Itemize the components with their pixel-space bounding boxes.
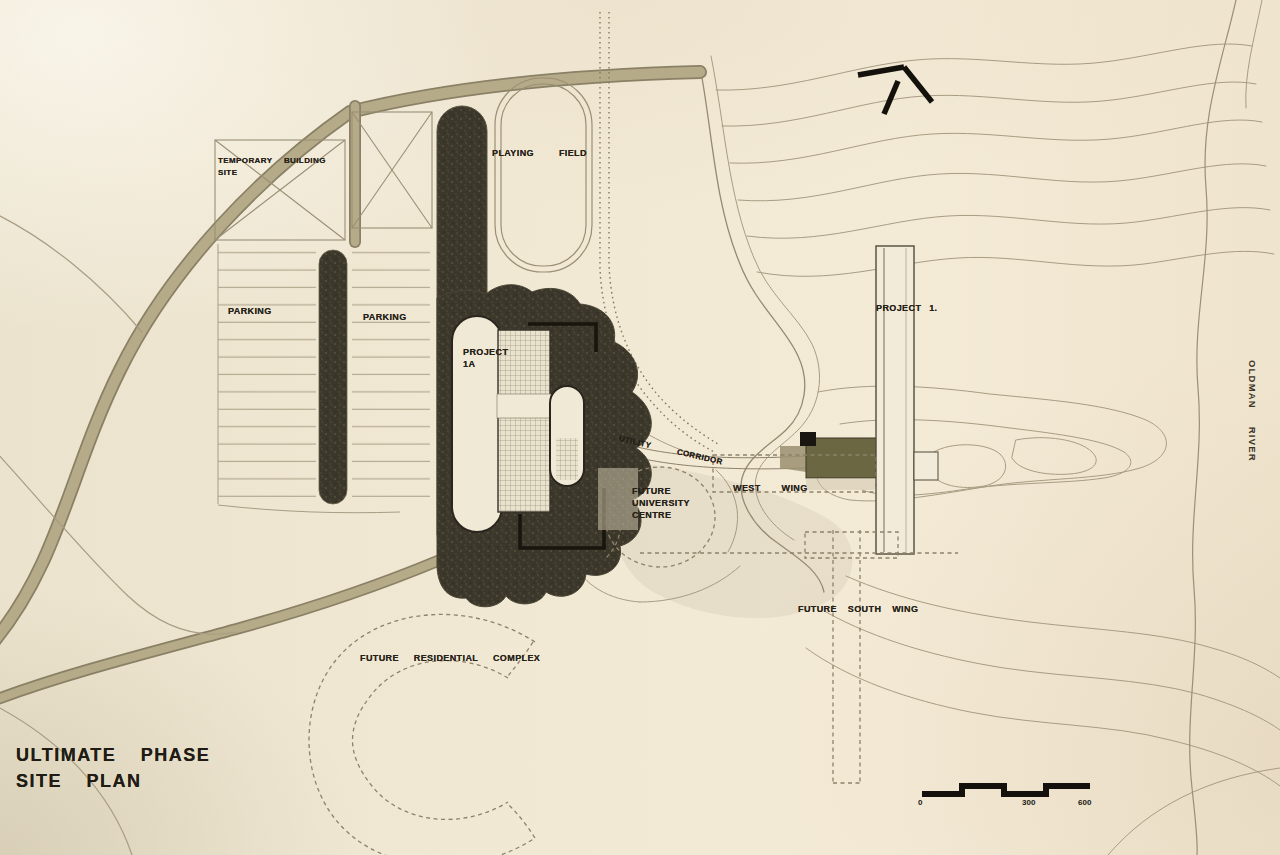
- label-future-university-centre: FUTURE UNIVERSITY CENTRE: [632, 485, 690, 521]
- future-residential-complex-arc: [309, 614, 535, 855]
- label-oldman-river: OLDMAN RIVER: [1247, 360, 1258, 462]
- north-arrow-icon: [858, 67, 932, 114]
- label-parking-west: PARKING: [228, 306, 272, 316]
- scale-bar: [922, 786, 1090, 794]
- label-project-1a: PROJECT 1A: [463, 346, 508, 370]
- scale-label-start: 0: [918, 798, 922, 807]
- link-corridor: [780, 432, 878, 490]
- site-plan: TEMPORARY BUILDING SITE PLAYING FIELD PA…: [0, 0, 1280, 855]
- label-playing-field: PLAYING FIELD: [492, 148, 587, 158]
- site-plan-drawing: [0, 0, 1280, 855]
- contour-lines: [567, 0, 1280, 855]
- scale-label-end: 600: [1078, 798, 1091, 807]
- scale-label-mid: 300: [1022, 798, 1035, 807]
- parking-median-planting: [319, 250, 347, 504]
- label-future-south-wing: FUTURE SOUTH WING: [798, 604, 918, 614]
- parking-area: [218, 240, 430, 513]
- playing-field-shape: [495, 78, 592, 272]
- project-1-building: [876, 246, 938, 554]
- label-west-wing: WEST WING: [733, 483, 808, 493]
- label-temporary-building-site: TEMPORARY BUILDING SITE: [218, 155, 326, 179]
- page-title: ULTIMATE PHASE SITE PLAN: [16, 742, 210, 794]
- label-parking-east: PARKING: [363, 312, 407, 322]
- label-project-1: PROJECT 1.: [876, 303, 938, 313]
- label-future-residential-complex: FUTURE RESIDENTIAL COMPLEX: [360, 653, 540, 663]
